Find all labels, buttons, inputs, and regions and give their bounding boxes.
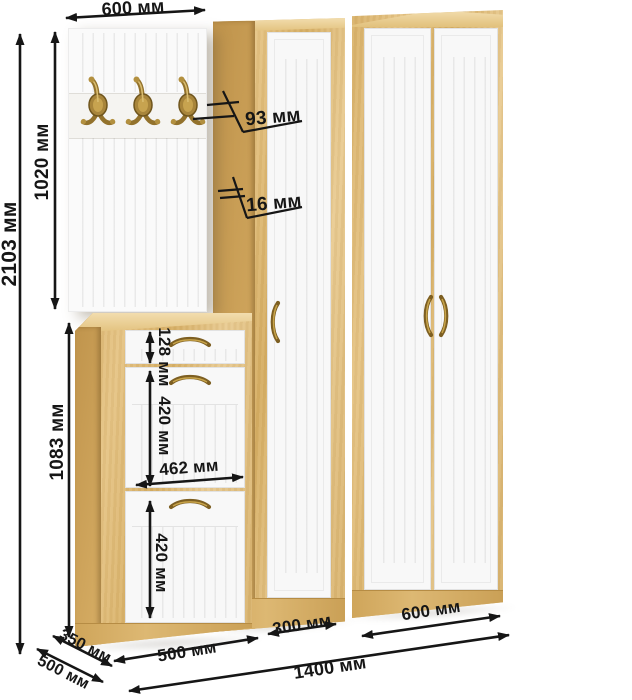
dim-flap1-height: 420 мм [154, 396, 174, 455]
tick-hook-depth [207, 102, 239, 105]
dim-total-height: 2103 мм [0, 201, 22, 286]
leader-hook-depth [223, 91, 243, 132]
tick-panel-thickness [218, 189, 243, 191]
furniture-dimension-diagram: 600 мм 2103 мм 1020 мм 1083 мм 93 мм 16 … [0, 0, 632, 700]
dim-flap2-height: 420 мм [151, 533, 171, 592]
tick-panel-thickness [220, 196, 245, 198]
dimension-lines [0, 0, 632, 700]
dim-line-front-width [136, 477, 243, 485]
tick-hook-depth [193, 116, 234, 119]
dim-panel-height: 1020 мм [32, 123, 54, 200]
dim-drawer-height: 128 мм [154, 327, 174, 386]
dim-cabinet-height: 1083 мм [47, 403, 69, 480]
